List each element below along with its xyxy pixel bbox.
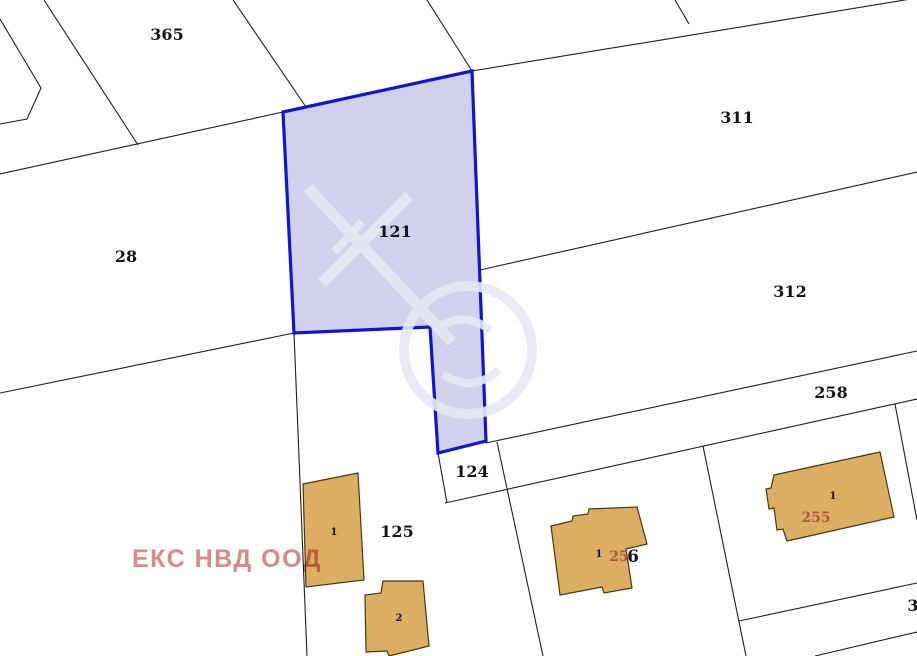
parcel-label-125: 125 xyxy=(380,522,413,541)
parcel-label-312: 312 xyxy=(773,282,806,301)
building-label-255-1: 1 xyxy=(830,491,837,502)
building-label-256-1: 1 xyxy=(596,549,603,560)
parcel-label-311: 311 xyxy=(720,108,753,127)
parcel-label-edge-partial: 3 xyxy=(907,596,917,615)
parcel-label-365: 365 xyxy=(150,25,183,44)
parcel-label-121: 121 xyxy=(378,222,411,241)
building-label-125-2: 2 xyxy=(396,613,403,624)
cadastral-map-canvas[interactable]: ЕКС НВД ООД 365 28 121 311 312 258 124 1… xyxy=(0,0,917,656)
parcel-label-28: 28 xyxy=(115,247,137,266)
building-label-125-1: 1 xyxy=(331,527,338,538)
building-label-255-red: 255 xyxy=(801,510,830,526)
building-label-256-red: 25 xyxy=(609,549,628,565)
parcel-label-258: 258 xyxy=(814,383,847,402)
building-label-256-black: 6 xyxy=(627,547,639,567)
map-svg: ЕКС НВД ООД 365 28 121 311 312 258 124 1… xyxy=(0,0,917,656)
company-watermark-text: ЕКС НВД ООД xyxy=(132,545,322,573)
parcel-label-124: 124 xyxy=(455,462,488,481)
